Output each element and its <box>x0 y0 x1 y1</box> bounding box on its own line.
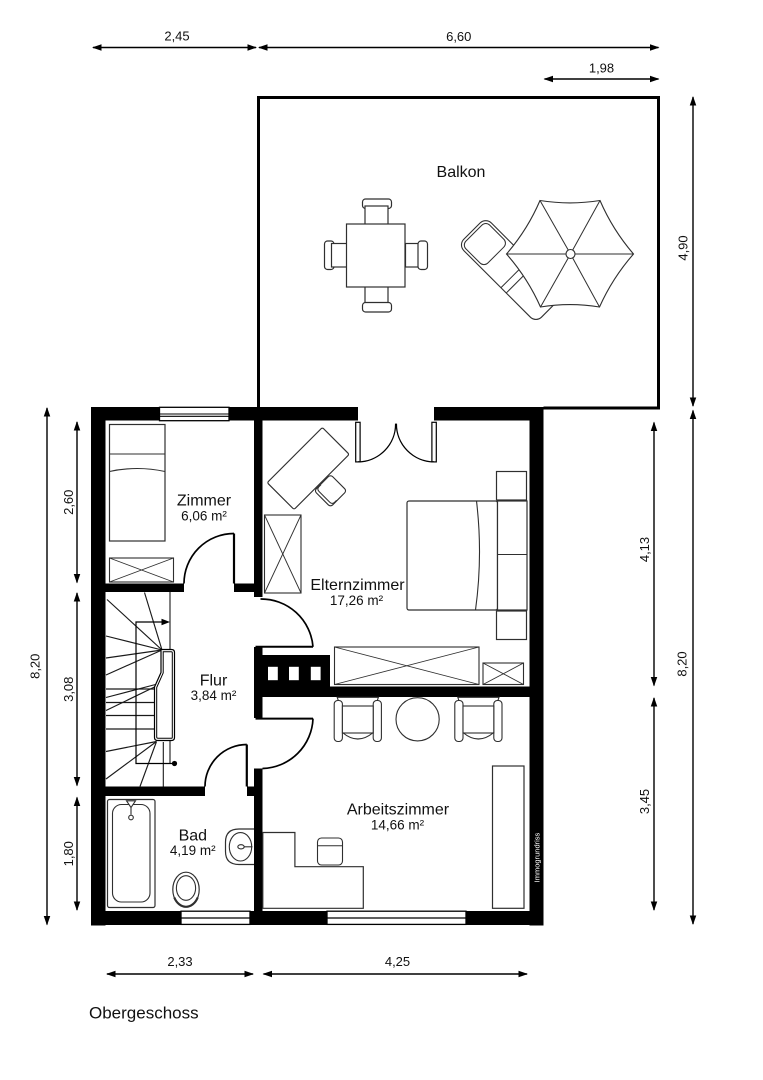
svg-text:6,06 m²: 6,06 m² <box>181 509 227 524</box>
svg-text:2,33: 2,33 <box>167 954 192 969</box>
svg-text:Bad: Bad <box>179 828 207 845</box>
svg-text:1,80: 1,80 <box>61 841 76 866</box>
svg-text:4,19 m²: 4,19 m² <box>170 843 216 858</box>
svg-text:Arbeitszimmer: Arbeitszimmer <box>347 802 450 819</box>
svg-text:3,45: 3,45 <box>637 789 652 814</box>
svg-text:6,60: 6,60 <box>446 29 471 44</box>
svg-text:14,66 m²: 14,66 m² <box>371 817 425 832</box>
svg-text:Flur: Flur <box>200 672 228 689</box>
svg-text:4,90: 4,90 <box>676 235 691 260</box>
svg-text:1,98: 1,98 <box>589 61 614 76</box>
svg-text:2,60: 2,60 <box>61 490 76 515</box>
svg-text:17,26 m²: 17,26 m² <box>330 593 384 608</box>
svg-text:4,13: 4,13 <box>637 537 652 562</box>
svg-text:Obergeschoss: Obergeschoss <box>89 1004 199 1023</box>
svg-text:8,20: 8,20 <box>28 654 43 679</box>
svg-text:Immogrundriss: Immogrundriss <box>533 832 542 882</box>
svg-text:Zimmer: Zimmer <box>177 493 232 510</box>
svg-text:3,84 m²: 3,84 m² <box>191 688 237 703</box>
svg-text:Balkon: Balkon <box>437 164 486 181</box>
svg-text:4,25: 4,25 <box>385 954 410 969</box>
svg-text:3,08: 3,08 <box>61 677 76 702</box>
svg-text:2,45: 2,45 <box>164 29 189 44</box>
svg-text:8,20: 8,20 <box>675 651 690 676</box>
svg-text:Elternzimmer: Elternzimmer <box>310 577 405 594</box>
